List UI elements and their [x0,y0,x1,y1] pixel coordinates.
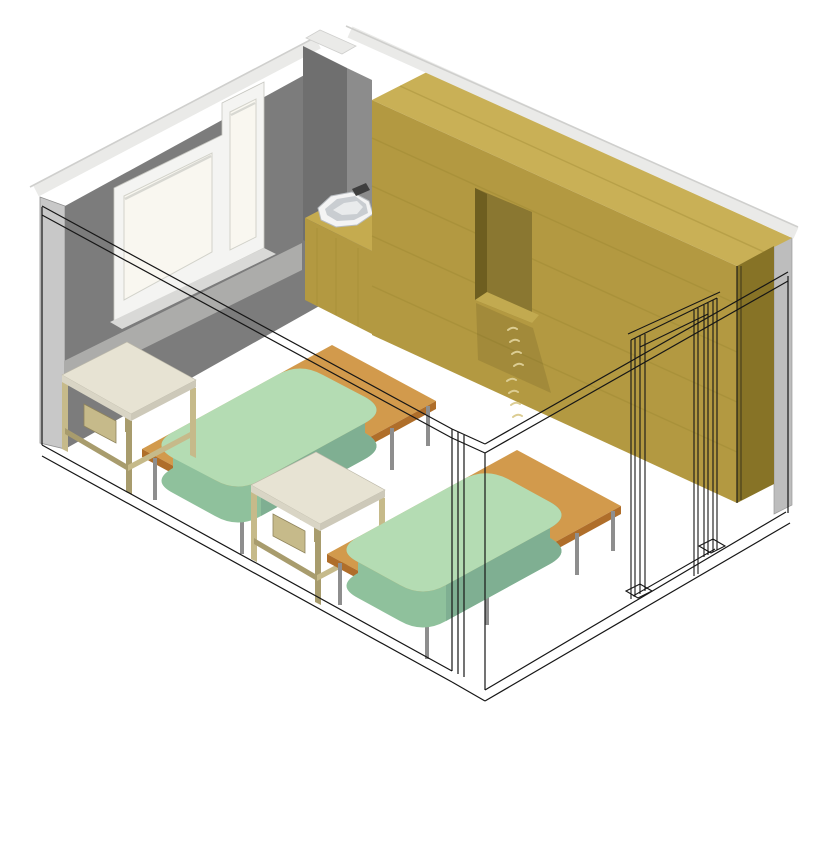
bed1-leg-1 [153,458,157,500]
table2-leg-front [315,528,321,605]
pull-icon-8 [513,415,522,417]
niche-side-left [475,188,487,300]
room-3d-view [0,0,820,847]
table2-leg-left [251,488,257,562]
bed2-leg-5 [611,511,615,551]
table1-leg-right [190,385,196,458]
table1-leg-left [62,378,68,452]
window-pane-right [230,99,256,250]
bed1-leg-4 [390,428,394,470]
axonometric-scene [0,0,820,847]
door-foot-left [626,584,652,598]
bed2-leg-1 [338,563,342,605]
table1-bar-left [65,428,128,471]
table2-bar-left [254,538,317,581]
top-jog-2 [452,438,485,453]
top-jog-1 [452,429,485,444]
pull-icon-7 [511,403,520,405]
bed-2 [327,450,621,659]
left-wall-edge-face [40,197,65,449]
bed2-leg-4 [575,533,579,575]
bottom-jog [452,682,485,701]
wardrobe-side-face [737,246,774,503]
table1-leg-front [126,418,132,495]
